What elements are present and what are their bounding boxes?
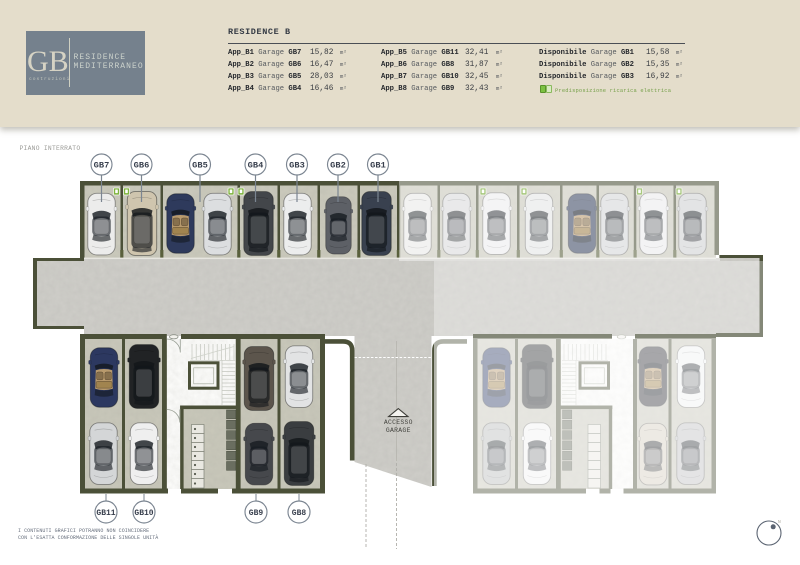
svg-text:GB11: GB11 — [96, 509, 115, 518]
svg-text:GB9: GB9 — [249, 509, 264, 518]
svg-text:ACCESSO: ACCESSO — [384, 419, 413, 426]
svg-text:N: N — [778, 519, 781, 525]
svg-text:GB5: GB5 — [192, 161, 208, 171]
svg-text:GB4: GB4 — [248, 161, 264, 171]
svg-text:GB1: GB1 — [370, 161, 386, 171]
svg-text:GB2: GB2 — [330, 161, 346, 171]
svg-text:GB8: GB8 — [292, 509, 307, 518]
svg-text:GB3: GB3 — [289, 161, 305, 171]
svg-text:GB6: GB6 — [134, 161, 150, 171]
svg-text:GB10: GB10 — [134, 509, 153, 518]
svg-text:GARAGE: GARAGE — [386, 427, 411, 434]
svg-text:GB7: GB7 — [94, 161, 110, 171]
